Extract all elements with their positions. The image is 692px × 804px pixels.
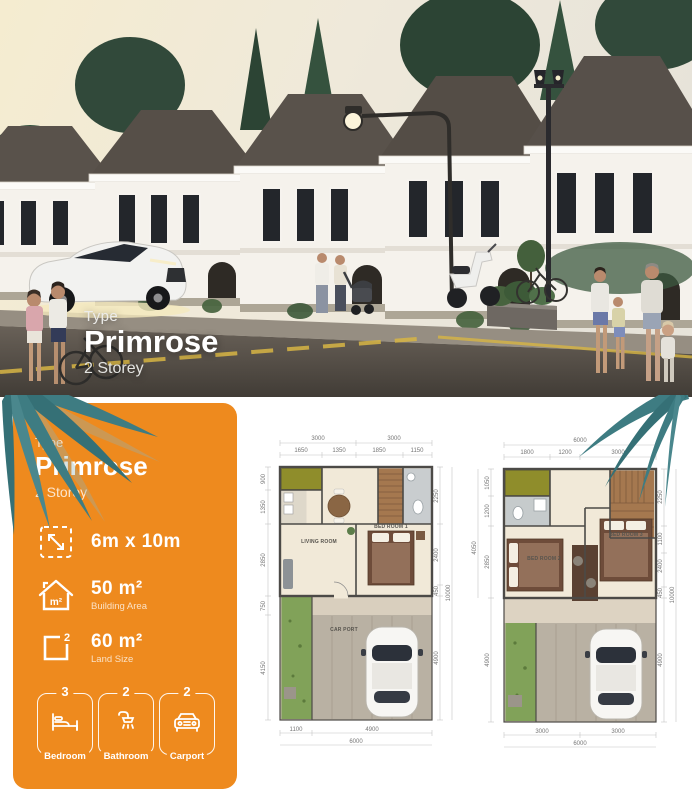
svg-text:10000: 10000 bbox=[446, 584, 452, 601]
carport-car-top-view bbox=[361, 627, 423, 717]
bedroom-label: Bedroom bbox=[41, 751, 89, 762]
spec-list: 6m x 10m m² 50 m² Building A bbox=[35, 524, 217, 666]
carport-count: 2 bbox=[178, 684, 195, 701]
land-size-value: 60 m² bbox=[91, 631, 143, 653]
real-estate-flyer: Type Primrose 2 Storey bbox=[0, 0, 692, 804]
svg-text:2250: 2250 bbox=[658, 490, 664, 504]
photo-caption: Type Primrose 2 Storey bbox=[84, 308, 218, 378]
svg-text:1200: 1200 bbox=[485, 504, 491, 518]
feature-badges: 3 Bedroom 2 bbox=[35, 693, 217, 755]
sofa bbox=[283, 559, 293, 589]
dimension-arrow-icon bbox=[35, 524, 77, 560]
bathroom-label: Bathroom bbox=[101, 751, 152, 762]
svg-text:1800: 1800 bbox=[520, 450, 534, 456]
svg-text:4150: 4150 bbox=[261, 661, 267, 675]
svg-text:2400: 2400 bbox=[658, 559, 664, 573]
house-icon-unit-text: m² bbox=[50, 597, 63, 608]
photo-house-type-name: Primrose bbox=[84, 325, 218, 360]
building-area-label: Building Area bbox=[91, 601, 147, 612]
room-label-bed3: BED ROOM 3 bbox=[609, 532, 643, 538]
bed-3 bbox=[600, 519, 652, 581]
svg-text:2400: 2400 bbox=[434, 548, 440, 562]
bedroom-count: 3 bbox=[56, 684, 73, 701]
card-storey-label: 2 Storey bbox=[35, 484, 217, 500]
svg-text:1850: 1850 bbox=[372, 448, 386, 454]
bathroom-count: 2 bbox=[117, 684, 134, 701]
svg-text:6000: 6000 bbox=[573, 438, 587, 444]
land-icon-sup-text: 2 bbox=[64, 632, 70, 644]
svg-text:10000: 10000 bbox=[670, 586, 676, 603]
svg-text:3000: 3000 bbox=[387, 436, 401, 442]
svg-text:1100: 1100 bbox=[290, 727, 304, 733]
svg-text:1050: 1050 bbox=[485, 476, 491, 490]
svg-text:450: 450 bbox=[658, 587, 664, 598]
floor-plan-1: LIVING ROOM BED ROOM 1 CAR PORT 3000 300… bbox=[248, 431, 460, 758]
land-size-label: Land Size bbox=[91, 654, 143, 665]
bed-icon bbox=[50, 709, 80, 740]
plant bbox=[347, 527, 355, 535]
laundry-counter bbox=[506, 471, 550, 496]
svg-text:1100: 1100 bbox=[658, 532, 664, 546]
room-label-carport: CAR PORT bbox=[330, 627, 358, 633]
spec-building-area: m² 50 m² Building Area bbox=[35, 575, 217, 615]
photo-type-label: Type bbox=[84, 308, 218, 325]
badge-bathroom: 2 Bathroom bbox=[98, 693, 154, 755]
room-label-living: LIVING ROOM bbox=[301, 539, 337, 545]
svg-text:3000: 3000 bbox=[535, 729, 549, 735]
spec-dimensions: 6m x 10m bbox=[35, 524, 217, 560]
svg-text:3000: 3000 bbox=[611, 729, 625, 735]
svg-text:1350: 1350 bbox=[261, 500, 267, 514]
svg-text:6000: 6000 bbox=[573, 741, 587, 747]
spec-land-size: 2 60 m² Land Size bbox=[35, 630, 217, 666]
kitchen-counter bbox=[282, 469, 322, 490]
svg-text:900: 900 bbox=[261, 473, 267, 484]
svg-text:4900: 4900 bbox=[365, 727, 379, 733]
badge-carport: 2 Carport bbox=[159, 693, 215, 755]
svg-text:1650: 1650 bbox=[294, 448, 308, 454]
svg-text:4050: 4050 bbox=[472, 541, 478, 555]
svg-text:1150: 1150 bbox=[411, 448, 425, 454]
carport-label: Carport bbox=[167, 751, 207, 762]
shower-icon bbox=[111, 709, 141, 740]
svg-text:2850: 2850 bbox=[261, 553, 267, 567]
bathroom bbox=[403, 469, 432, 524]
door-opening bbox=[334, 594, 348, 599]
room-label-bed1: BED ROOM 1 bbox=[374, 524, 408, 530]
svg-text:750: 750 bbox=[261, 600, 267, 611]
card-house-type-name: Primrose bbox=[35, 451, 217, 482]
driveway-car-top-view bbox=[585, 629, 647, 719]
badge-bedroom: 3 Bedroom bbox=[37, 693, 93, 755]
building-area-value: 50 m² bbox=[91, 578, 147, 600]
svg-text:1350: 1350 bbox=[332, 448, 346, 454]
land-size-icon: 2 bbox=[35, 630, 77, 666]
svg-text:2250: 2250 bbox=[434, 489, 440, 503]
building-area-icon: m² bbox=[35, 575, 77, 615]
svg-text:1200: 1200 bbox=[558, 450, 572, 456]
svg-text:4900: 4900 bbox=[658, 653, 664, 667]
photo-storey-label: 2 Storey bbox=[84, 360, 218, 378]
svg-text:6000: 6000 bbox=[349, 739, 363, 745]
svg-text:3000: 3000 bbox=[611, 450, 625, 456]
card-type-label: Type bbox=[35, 435, 217, 450]
details-section: Type Primrose 2 Storey 6m x 10m bbox=[0, 397, 692, 804]
room-label-bed2: BED ROOM 2 bbox=[527, 556, 561, 562]
svg-text:450: 450 bbox=[434, 585, 440, 596]
lot-dimensions-value: 6m x 10m bbox=[91, 531, 181, 553]
bed-2 bbox=[507, 539, 563, 591]
svg-text:4900: 4900 bbox=[485, 653, 491, 667]
hero-photo: Type Primrose 2 Storey bbox=[0, 0, 692, 397]
bathroom-2 bbox=[506, 496, 550, 526]
spec-card: Type Primrose 2 Storey 6m x 10m bbox=[13, 403, 237, 789]
floor-plan-2: BED ROOM 2 BED ROOM 3 6000 1800 1200 300… bbox=[470, 433, 684, 760]
stairs bbox=[378, 469, 403, 524]
svg-text:2850: 2850 bbox=[485, 555, 491, 569]
car-icon bbox=[172, 709, 202, 740]
svg-text:3000: 3000 bbox=[311, 436, 325, 442]
svg-text:4900: 4900 bbox=[434, 651, 440, 665]
